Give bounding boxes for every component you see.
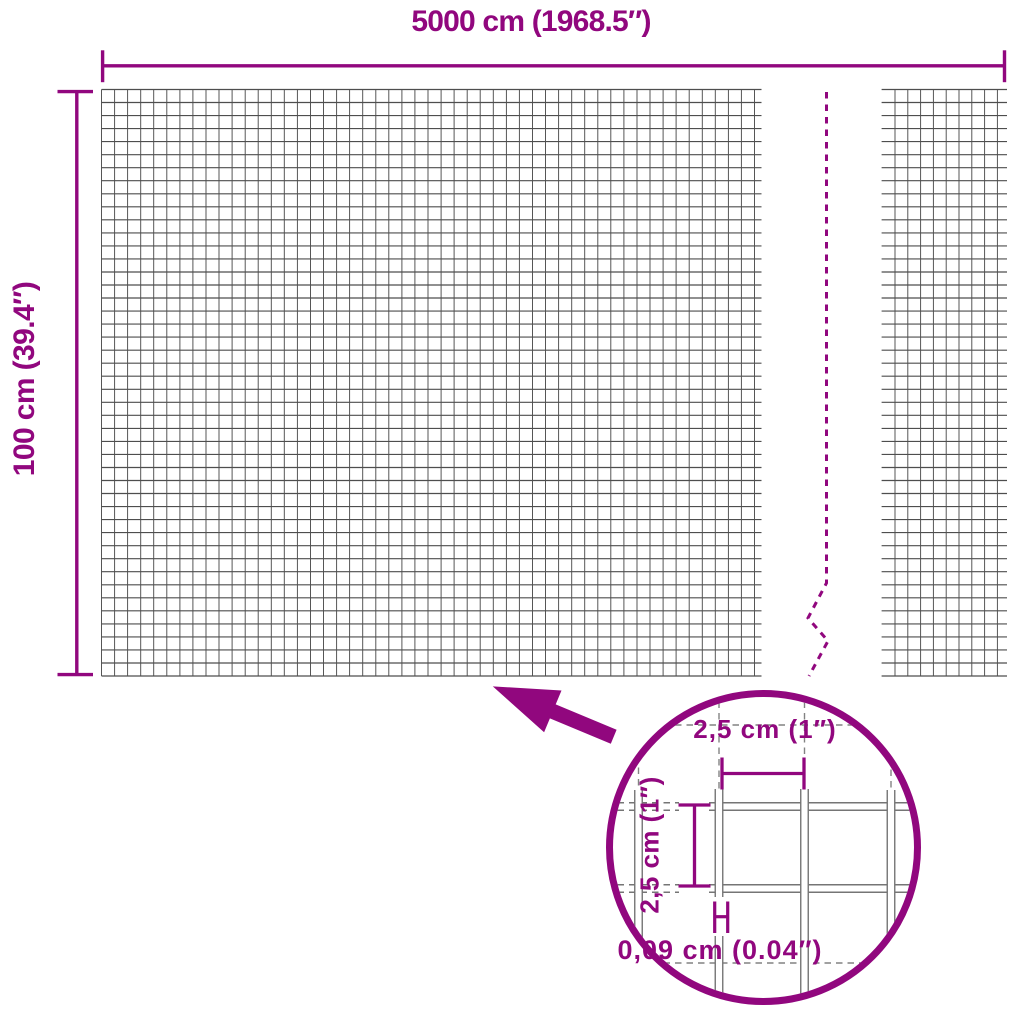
svg-text:100 cm (39.4″): 100 cm (39.4″) xyxy=(8,282,41,476)
svg-text:5000 cm (1968.5″): 5000 cm (1968.5″) xyxy=(411,5,650,38)
svg-text:0,09 cm (0.04″): 0,09 cm (0.04″) xyxy=(617,935,822,965)
svg-text:2,5 cm (1″): 2,5 cm (1″) xyxy=(693,714,836,744)
svg-text:2,5 cm (1″): 2,5 cm (1″) xyxy=(635,776,665,913)
